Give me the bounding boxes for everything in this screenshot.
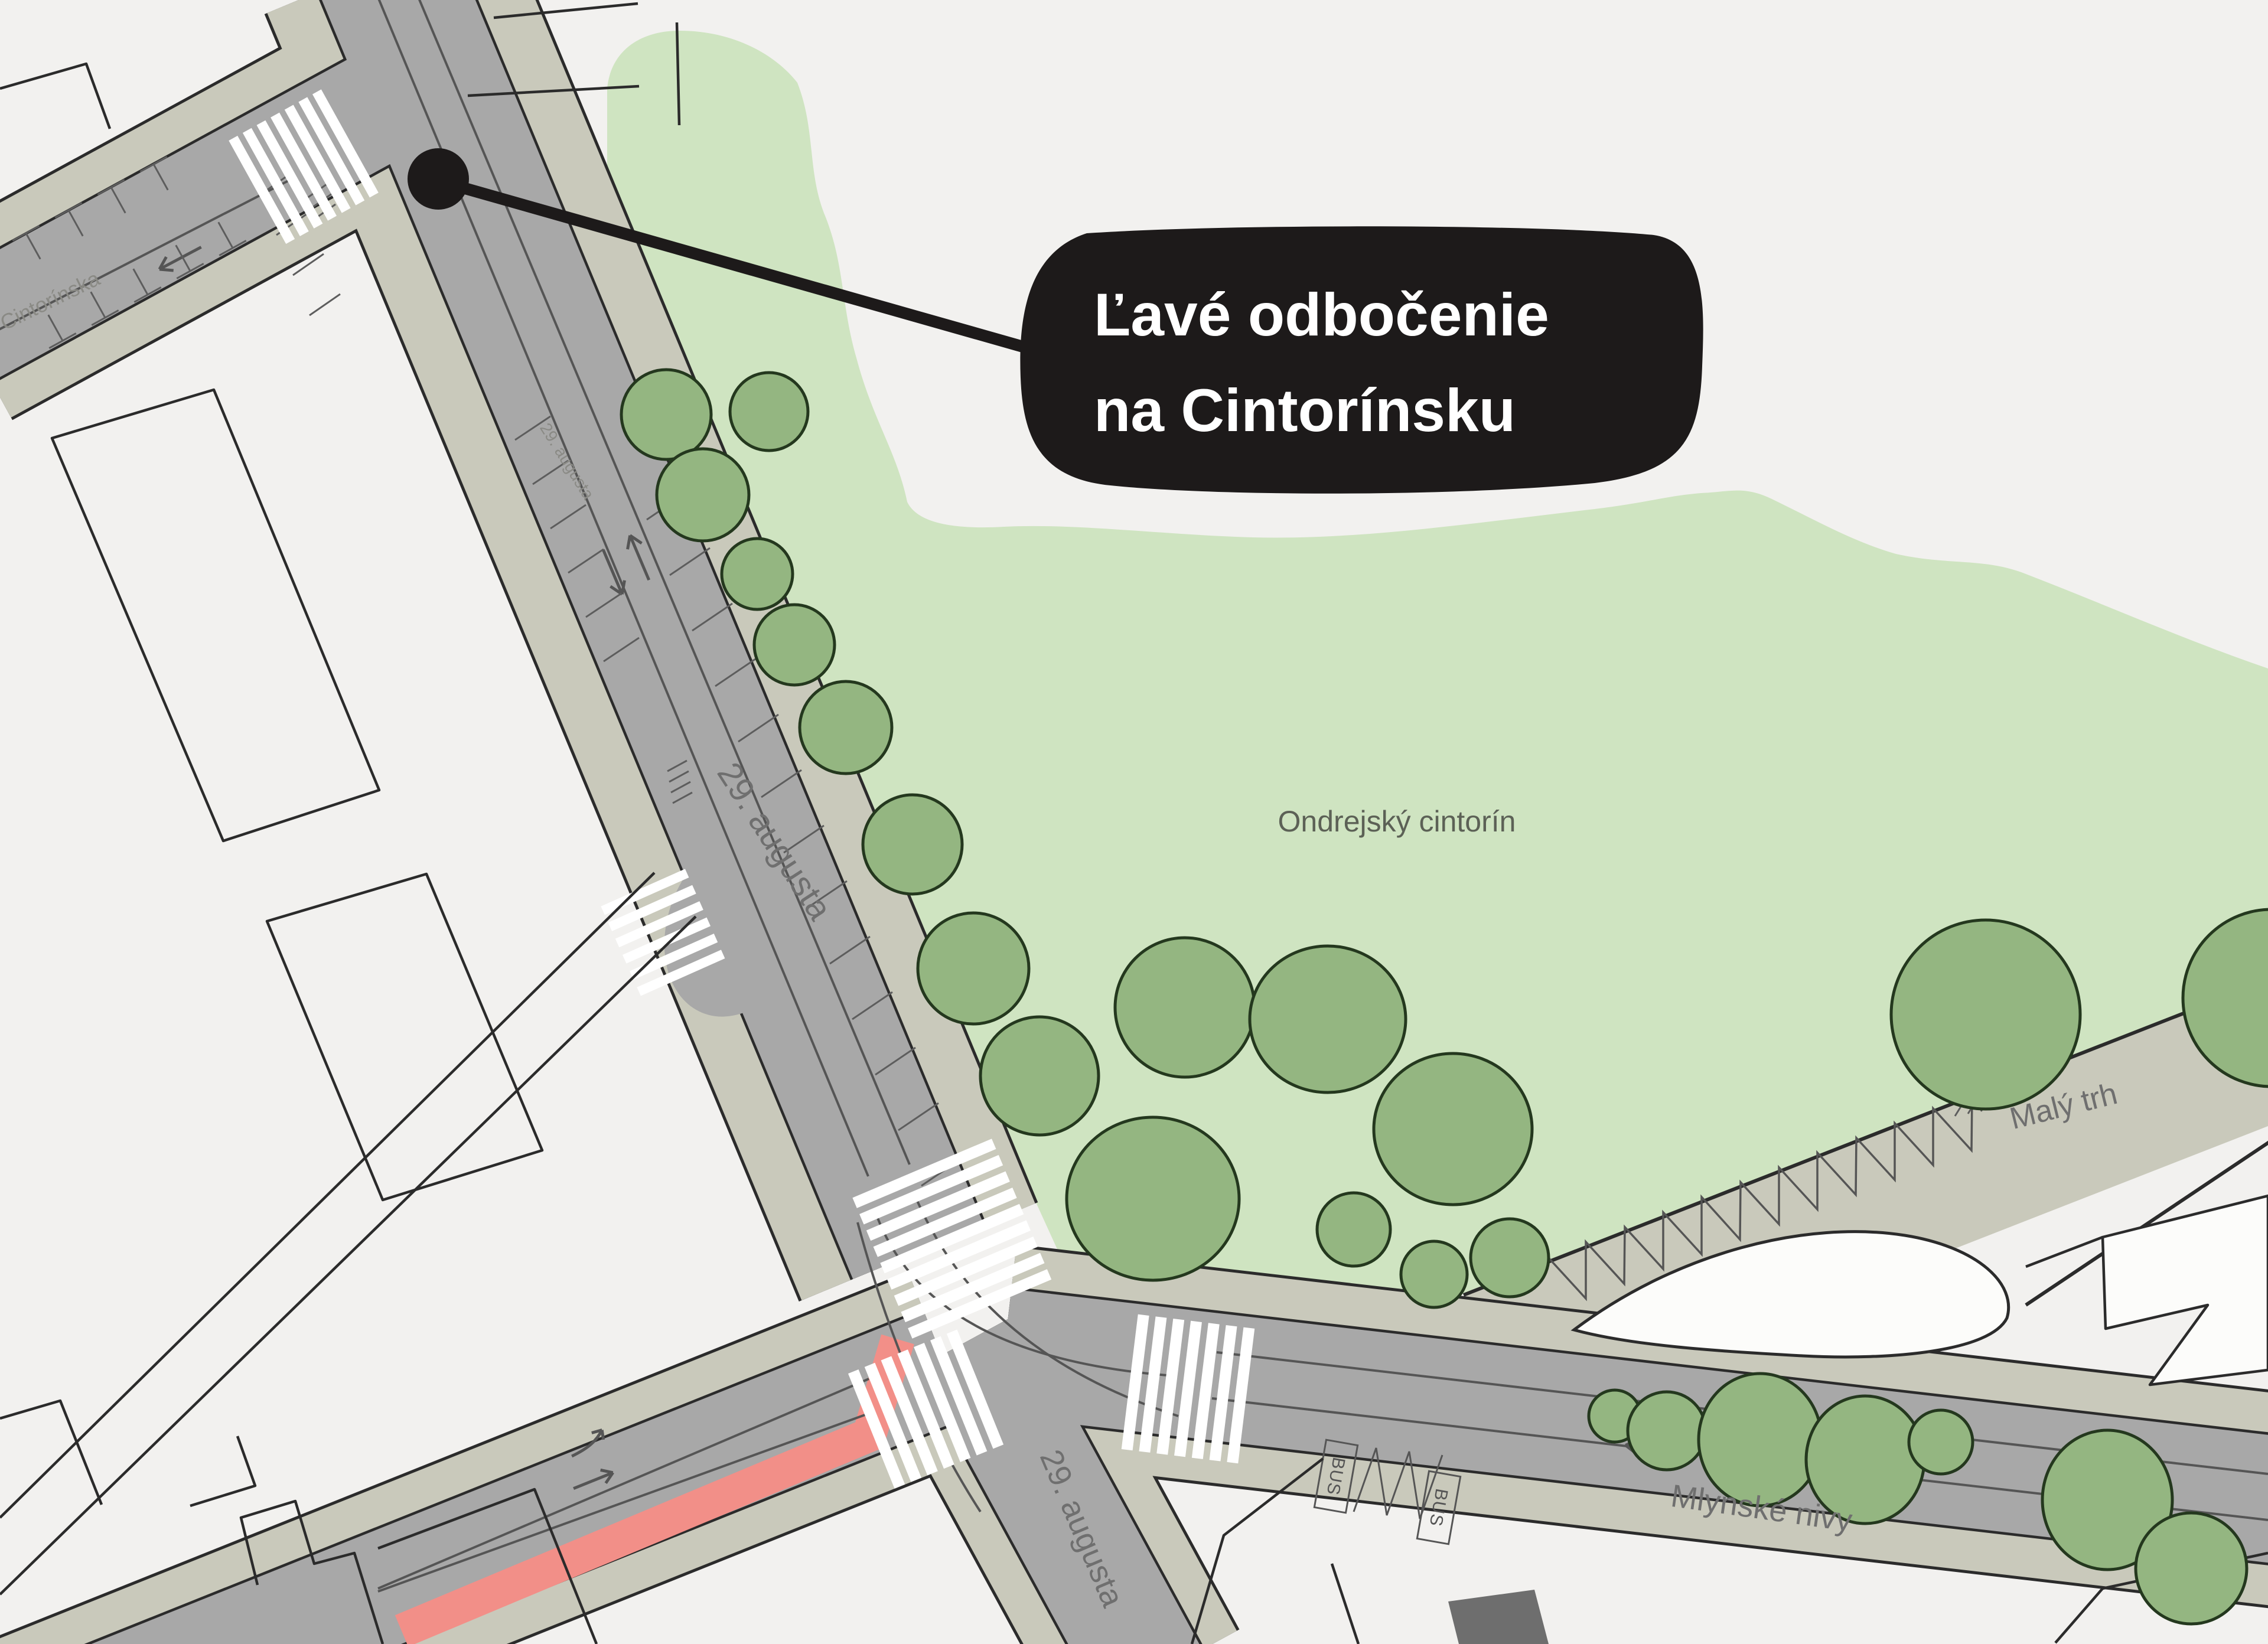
- tree: [1115, 938, 1254, 1077]
- callout-text-line2: na Cintorínsku: [1094, 377, 1516, 444]
- tree: [800, 681, 892, 774]
- tree: [1909, 1410, 1973, 1474]
- tree: [1067, 1117, 1239, 1280]
- tree: [863, 795, 962, 894]
- map-canvas: BUS BUS: [0, 0, 2268, 1644]
- tree: [657, 449, 749, 541]
- tree: [1250, 946, 1406, 1092]
- tree: [1374, 1053, 1532, 1205]
- tree: [722, 539, 793, 609]
- tree: [1471, 1219, 1549, 1297]
- tree: [730, 373, 808, 451]
- tree: [1891, 920, 2080, 1109]
- tree: [2136, 1513, 2247, 1624]
- callout-text-line1: Ľavé odbočenie: [1094, 281, 1549, 348]
- area-label-cemetery: Ondrejský cintorín: [1278, 805, 1516, 838]
- tree: [1628, 1392, 1706, 1470]
- tree: [754, 605, 835, 685]
- tree: [980, 1017, 1099, 1135]
- callout-anchor-dot: [408, 148, 469, 210]
- callout-bubble: [1020, 226, 1703, 493]
- tree: [1401, 1241, 1467, 1307]
- tree: [1317, 1193, 1390, 1266]
- tree: [621, 370, 711, 459]
- tree: [918, 913, 1029, 1024]
